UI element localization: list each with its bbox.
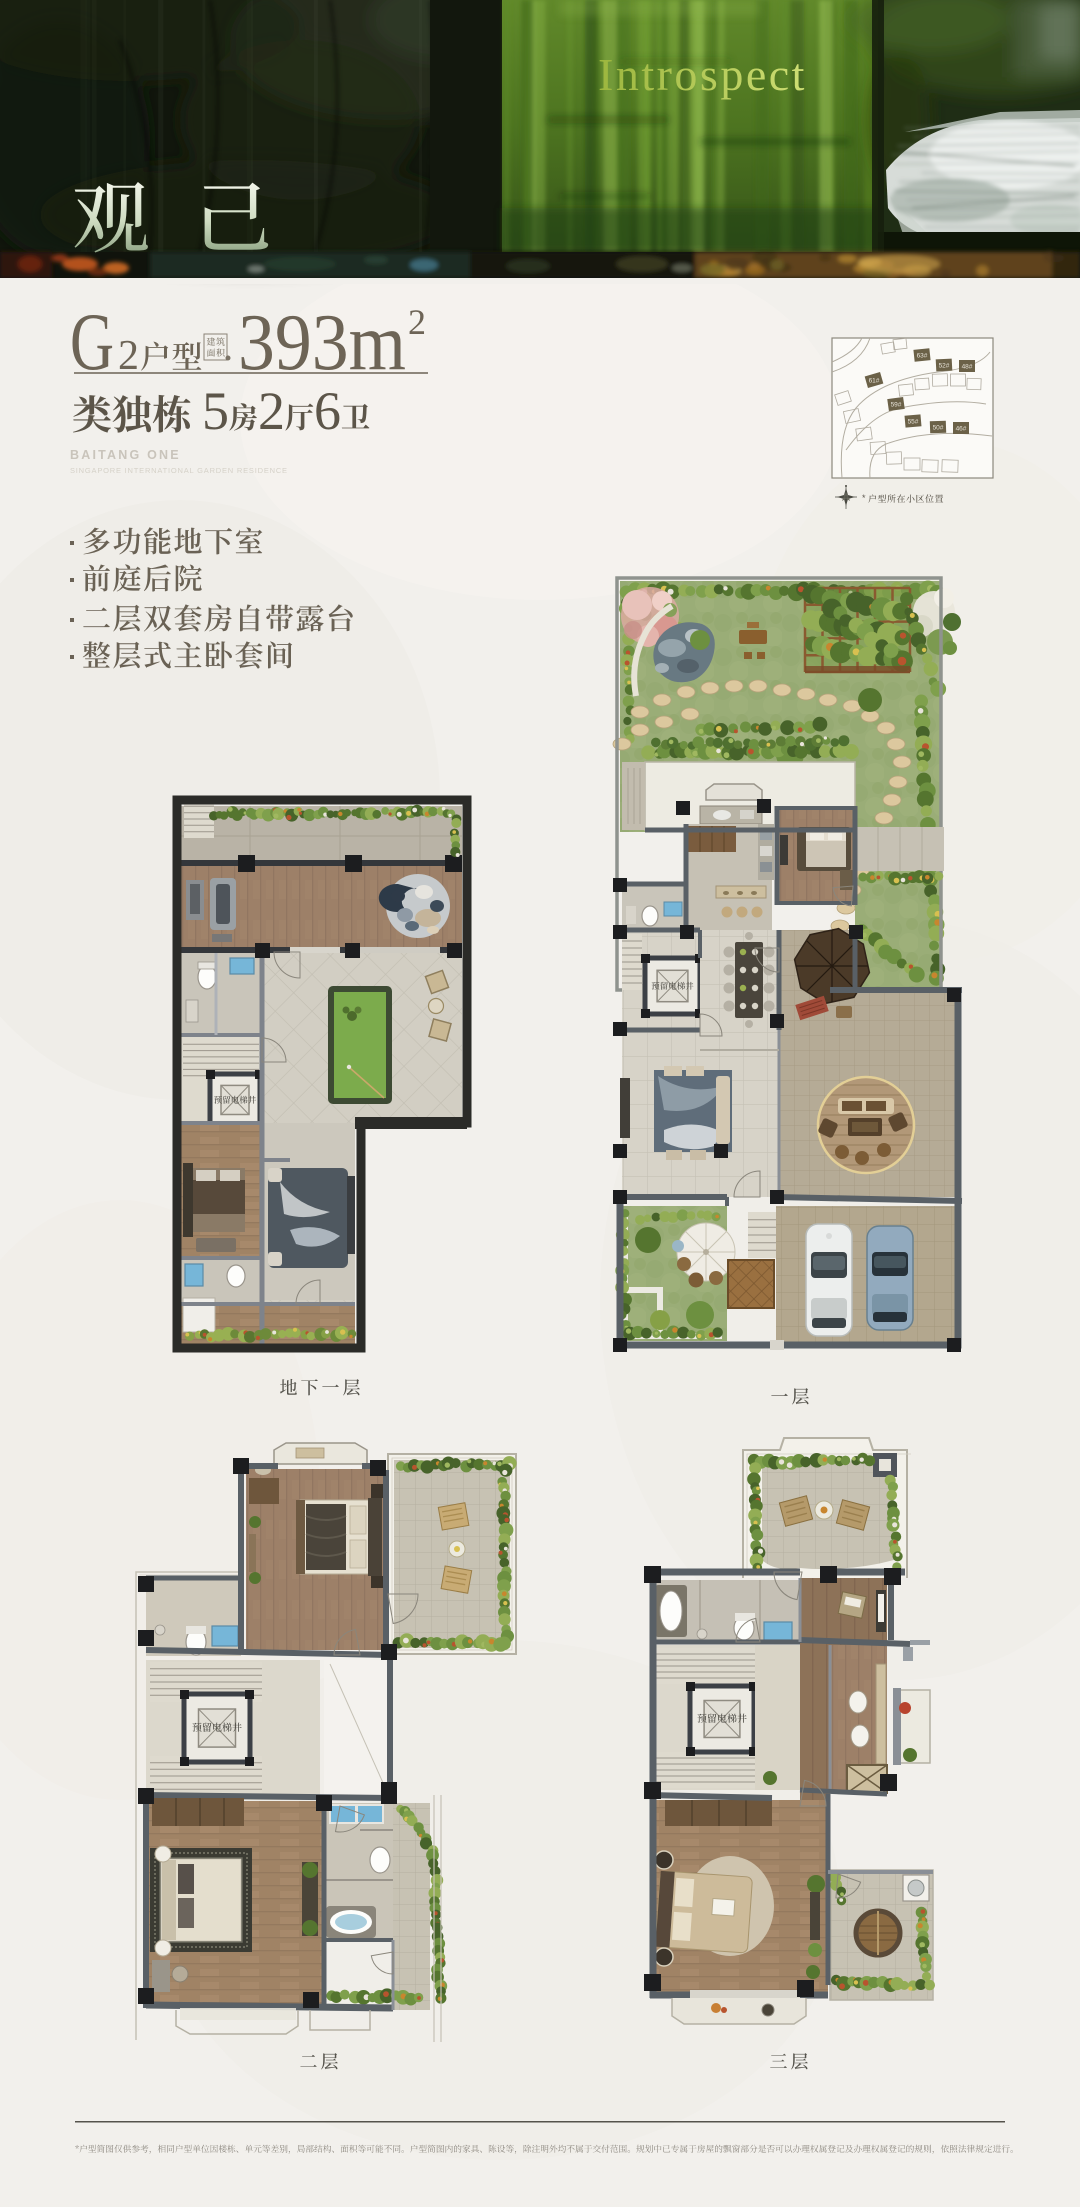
svg-text:52#: 52# [939,363,950,370]
svg-text:46#: 46# [956,426,967,433]
svg-text:*: * [862,493,866,503]
svg-text:Introspect: Introspect [598,49,807,100]
svg-text:48#: 48# [962,364,973,371]
svg-text:55#: 55# [908,419,919,426]
svg-text:63#: 63# [917,353,928,360]
svg-text:59#: 59# [891,402,902,409]
svg-text:2: 2 [408,302,426,342]
svg-text:BAITANG ONE: BAITANG ONE [70,448,181,462]
svg-text:6: 6 [314,381,341,441]
svg-text:61#: 61# [869,378,880,385]
svg-text:50#: 50# [933,425,944,432]
svg-text:2: 2 [258,381,285,441]
svg-text:5: 5 [202,381,229,441]
svg-text:SINGAPORE INTERNATIONAL GARDEN: SINGAPORE INTERNATIONAL GARDEN RESIDENCE [70,466,288,475]
